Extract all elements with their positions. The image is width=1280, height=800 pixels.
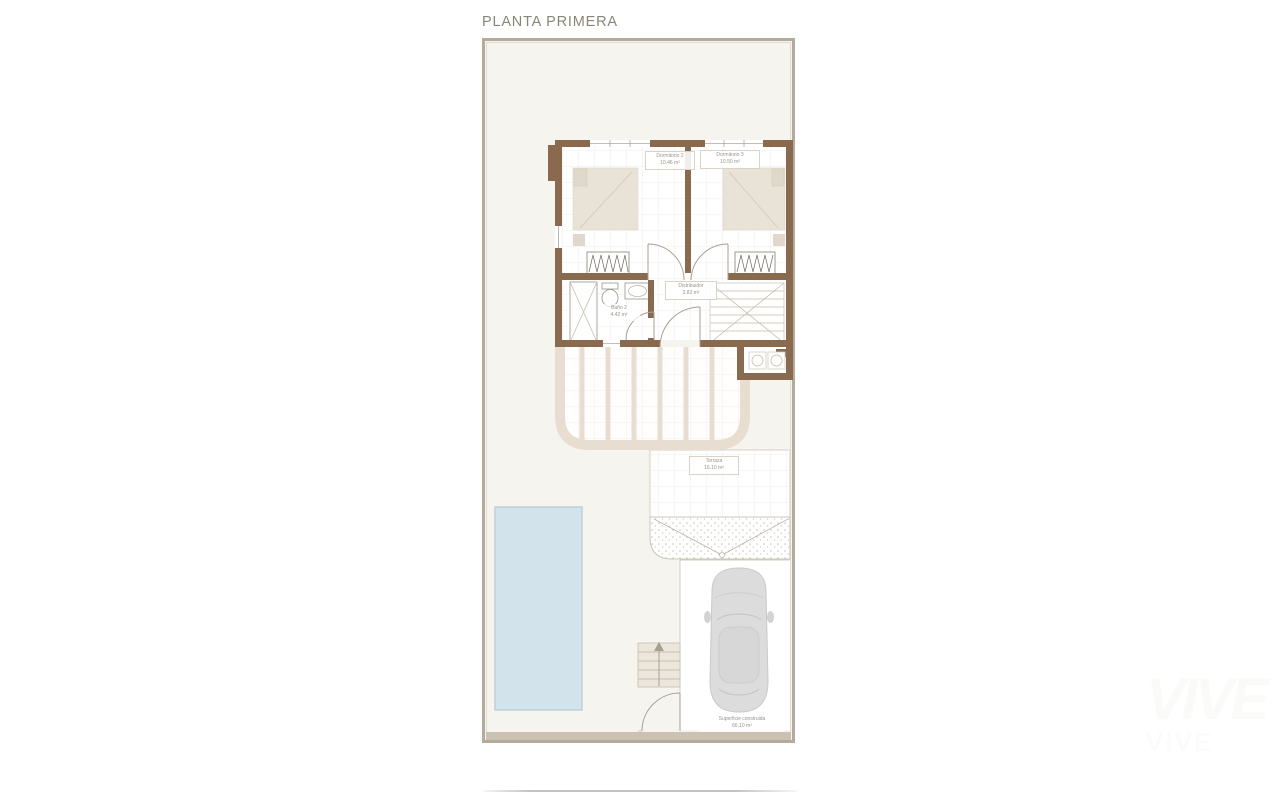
watermark-text: VIVE xyxy=(1146,672,1280,727)
page-title: PLANTA PRIMERA xyxy=(482,14,618,30)
toilet-icon xyxy=(602,283,618,307)
sink-icon xyxy=(625,283,650,299)
closet-icon xyxy=(587,252,629,274)
floor-plan-drawing xyxy=(482,38,795,743)
balcony xyxy=(560,347,745,445)
watermark: VIVE VIVE xyxy=(1146,672,1280,792)
room-label-terraza: Terraza16.10 m² xyxy=(689,456,739,475)
awning-stipple xyxy=(650,517,790,559)
floor-plan-page: PLANTA PRIMERA xyxy=(0,0,1280,800)
bottom-shadow-line xyxy=(483,790,797,792)
pool xyxy=(495,507,582,710)
room-label-dormitorio-3: Dormitorio 310.50 m² xyxy=(700,150,760,169)
exterior-stairs-icon xyxy=(638,642,680,687)
shower-icon xyxy=(570,282,597,342)
car-icon xyxy=(704,568,774,712)
floor-plan xyxy=(482,38,795,743)
room-label-distribuidor: Distribuidor3.82 m² xyxy=(665,281,717,300)
interior-stairs-icon xyxy=(710,283,784,343)
room-label-bano-2: Baño 24.42 m² xyxy=(598,304,640,321)
closet-icon xyxy=(735,252,775,274)
built-surface-label: Superficie construida66.10 m² xyxy=(700,715,784,732)
watermark-subtext: VIVE xyxy=(1146,727,1280,758)
room-label-dormitorio-2: Dormitorio 210.46 m² xyxy=(645,151,695,170)
